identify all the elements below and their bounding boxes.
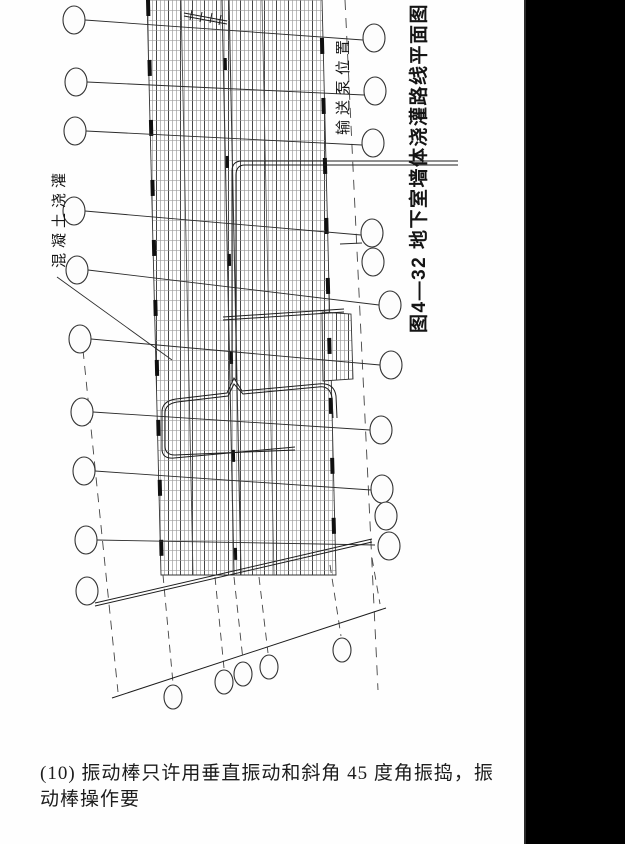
label-concrete-pour: 混凝土浇灌 bbox=[51, 168, 68, 268]
axis-bubble bbox=[364, 77, 386, 105]
axis-bubble bbox=[66, 256, 88, 284]
axis-bubble bbox=[362, 129, 384, 157]
axis-bubble bbox=[63, 6, 85, 34]
axis-bubble bbox=[333, 638, 351, 662]
axis-bubble bbox=[73, 457, 95, 485]
axis-bubble bbox=[380, 351, 402, 379]
axis-bubble bbox=[69, 325, 91, 353]
axis-bubble bbox=[164, 685, 182, 709]
axis-bubble bbox=[363, 24, 385, 52]
figure-diagram: 输送泵位置 混凝土浇灌 图4—32 地下室墙体浇灌路线平面图 bbox=[0, 0, 524, 844]
axis-bubble bbox=[379, 291, 401, 319]
scanned-page: 输送泵位置 混凝土浇灌 图4—32 地下室墙体浇灌路线平面图 (10) 振动棒只… bbox=[0, 0, 625, 844]
axis-bubble bbox=[71, 398, 93, 426]
axis-bubble bbox=[375, 502, 397, 530]
axis-bubbles-left bbox=[63, 6, 98, 605]
axis-bubble bbox=[371, 475, 393, 503]
axis-bubble bbox=[76, 577, 98, 605]
axis-bubble bbox=[234, 662, 252, 686]
axis-bubble bbox=[260, 655, 278, 679]
axis-bubble bbox=[75, 526, 97, 554]
axis-bubble bbox=[65, 68, 87, 96]
label-pump-position: 输送泵位置 bbox=[335, 35, 352, 135]
axis-bubble bbox=[361, 219, 383, 247]
axis-bubble bbox=[370, 416, 392, 444]
figure-title: 图4—32 地下室墙体浇灌路线平面图 bbox=[407, 3, 430, 333]
axis-bubble bbox=[215, 670, 233, 694]
axis-bubbles-bottom bbox=[164, 638, 351, 709]
axis-bubble bbox=[378, 532, 400, 560]
axis-bubbles-right bbox=[361, 24, 402, 560]
axis-bubble bbox=[362, 248, 384, 276]
axis-bubble bbox=[64, 117, 86, 145]
caption-text: (10) 振动棒只许用垂直振动和斜角 45 度角振捣，振动棒操作要 bbox=[40, 761, 510, 812]
scan-edge-bar bbox=[524, 0, 625, 844]
